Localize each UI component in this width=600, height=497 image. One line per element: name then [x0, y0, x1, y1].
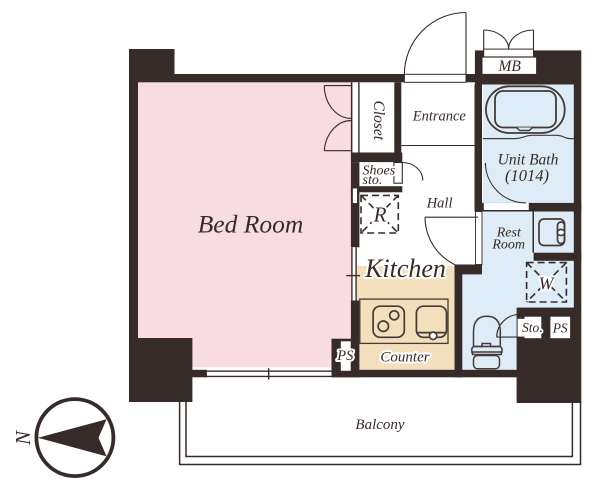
- svg-text:R: R: [373, 203, 387, 227]
- svg-text:Counter: Counter: [380, 349, 429, 365]
- svg-text:PS: PS: [336, 348, 354, 364]
- svg-text:Room: Room: [491, 237, 525, 252]
- svg-text:Kitchen: Kitchen: [364, 254, 446, 283]
- svg-text:Hall: Hall: [426, 196, 453, 212]
- svg-text:N: N: [11, 430, 35, 446]
- svg-text:PS: PS: [552, 320, 568, 335]
- svg-text:Closet: Closet: [370, 100, 387, 140]
- svg-text:Balcony: Balcony: [355, 417, 404, 433]
- svg-text:Entrance: Entrance: [412, 108, 467, 124]
- svg-text:sto.: sto.: [363, 173, 383, 188]
- svg-text:MB: MB: [498, 58, 522, 75]
- svg-text:(1014): (1014): [505, 166, 549, 185]
- svg-text:Sto.: Sto.: [522, 320, 543, 335]
- svg-text:W: W: [539, 273, 555, 293]
- svg-text:Bed Room: Bed Room: [198, 210, 304, 239]
